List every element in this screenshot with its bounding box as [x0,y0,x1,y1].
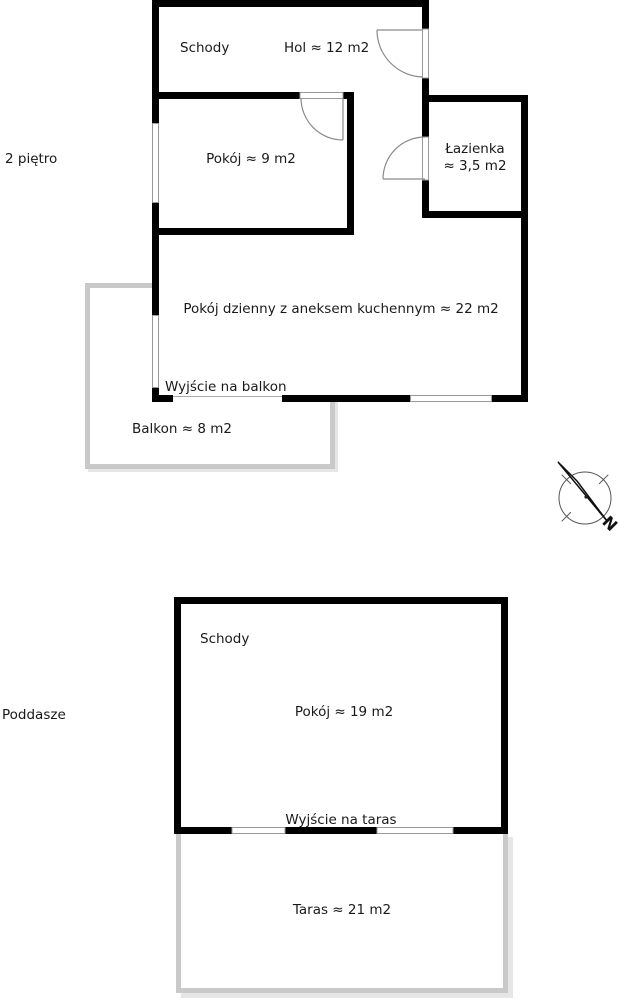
floorplan-drawing: N [0,0,620,1000]
window-icon [153,316,159,388]
floor1-name-label: 2 piętro [5,151,57,168]
floor2-name-label: Poddasze [2,707,66,724]
floor1-footprint [152,0,528,402]
north-arrow [558,462,607,521]
window-icon [153,124,159,203]
lazienka-area: ≈ 3,5 m2 [443,158,506,175]
window-icon [411,396,492,402]
label-taras-exit: Wyjście na taras [285,812,396,829]
room-label-pokoj-19: Pokój ≈ 19 m2 [295,704,393,721]
room-label-living: Pokój dzienny z aneksem kuchennym ≈ 22 m… [183,301,498,318]
room-label-lazienka: Łazienka ≈ 3,5 m2 [443,141,506,175]
room-label-taras: Taras ≈ 21 m2 [293,902,391,919]
room-label-schody-1: Schody [180,40,229,57]
label-balcony-exit: Wyjście na balkon [165,379,287,396]
room-label-balkon: Balkon ≈ 8 m2 [132,421,232,438]
room-label-hol: Hol ≈ 12 m2 [284,40,369,57]
room-label-schody-2: Schody [200,631,249,648]
lazienka-name: Łazienka [443,141,506,158]
taras-door-opening [232,828,285,834]
room-label-pokoj-9: Pokój ≈ 9 m2 [206,151,296,168]
balcony-exit-opening [173,395,282,402]
floorplan-page: N 2 piętro Schody Hol ≈ 12 m2 Pokój ≈ 9 … [0,0,620,1000]
compass-icon: N [558,462,620,535]
